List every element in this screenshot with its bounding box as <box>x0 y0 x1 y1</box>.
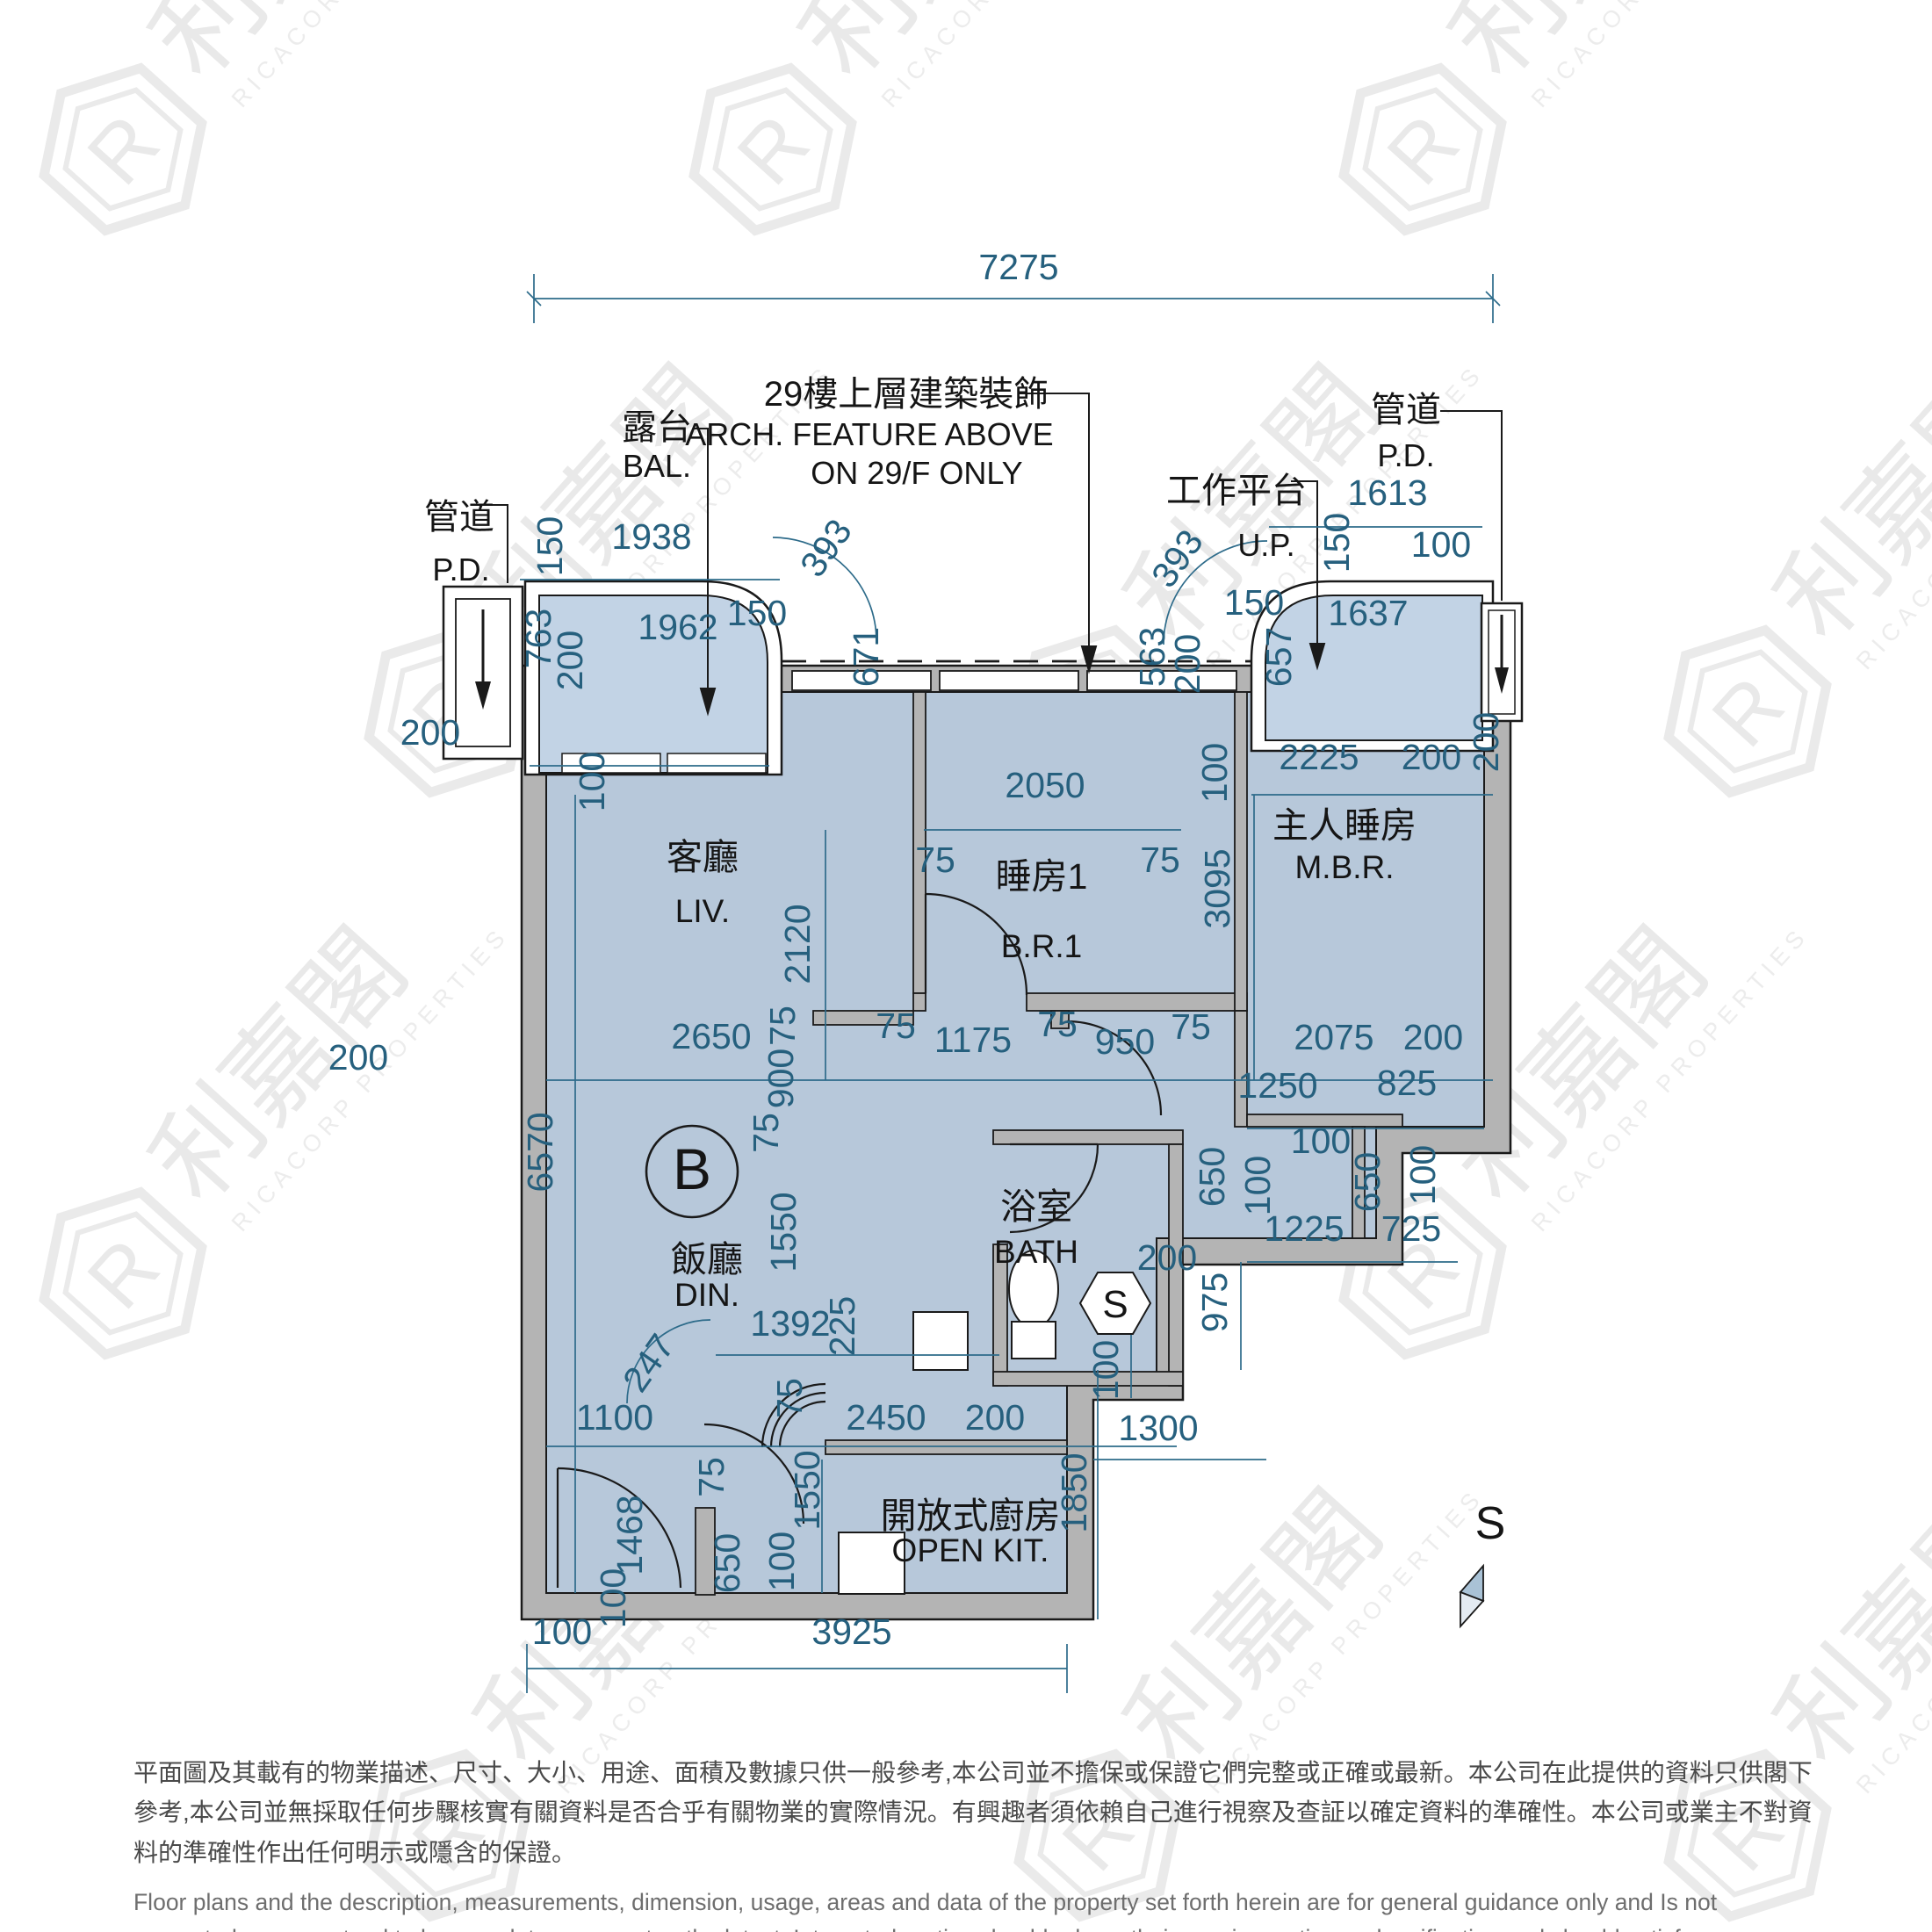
floor-plan-page: R利嘉閣RICACORP PROPERTIESR利嘉閣RICACORP PROP… <box>0 0 1932 1932</box>
dimension-label: 200 <box>1137 1237 1197 1278</box>
dimension-label: 2075 <box>1294 1017 1373 1057</box>
dimension-label: 100 <box>1194 743 1235 803</box>
dimension-label: 100 <box>532 1611 592 1652</box>
room-label-open-kitchen-en: OPEN KIT. <box>892 1532 1049 1568</box>
dimension-label: 100 <box>1237 1156 1278 1215</box>
dimension-label: 975 <box>1194 1272 1235 1332</box>
dimension-label: 75 <box>876 1006 916 1046</box>
dimension-label: 650 <box>1347 1152 1388 1212</box>
pd-right-zh: 管道 <box>1371 391 1441 429</box>
dimension-label: 75 <box>691 1457 732 1497</box>
pd-left-zh: 管道 <box>424 498 494 537</box>
dimension-label: 75 <box>746 1113 786 1153</box>
dimension-label: 100 <box>593 1568 633 1628</box>
balcony-zh: 露台 <box>622 408 692 447</box>
room-label-master-bedroom-en: M.B.R. <box>1294 849 1394 885</box>
room-label-dining-room-zh: 飯廳 <box>671 1239 743 1280</box>
dimension-label: 1392 <box>750 1303 830 1344</box>
dimension-label: 2450 <box>846 1397 926 1438</box>
dimension-label: 1962 <box>638 607 717 647</box>
dimension-label: 2225 <box>1279 737 1359 777</box>
room-label-dining-room-en: DIN. <box>674 1277 739 1313</box>
watermark-tile: R利嘉閣RICACORP PROPERTIES <box>13 0 527 259</box>
floor-plan-drawing: R利嘉閣RICACORP PROPERTIESR利嘉閣RICACORP PROP… <box>0 0 1932 1932</box>
pd-left-en: P.D. <box>432 551 489 588</box>
dimension-label: 200 <box>400 712 460 753</box>
room-label-bedroom-1-en: B.R.1 <box>1001 928 1083 964</box>
arch-feature-zh: 29樓上層建築裝飾 <box>764 375 1049 414</box>
dimension-label: 1550 <box>787 1450 827 1530</box>
dimension-label: 2120 <box>777 904 818 984</box>
dimension-label: 1613 <box>1347 472 1427 513</box>
dimension-label: 1938 <box>611 516 691 557</box>
dimension-label: 75 <box>762 1006 803 1046</box>
dimension-label: 100 <box>572 752 612 811</box>
dimension-label: 657 <box>1258 627 1299 687</box>
dimension-label: 1100 <box>576 1397 653 1438</box>
dimension-label: 2050 <box>1005 765 1085 805</box>
pd-right-en: P.D. <box>1377 437 1434 473</box>
dimension-label: 900 <box>761 1049 801 1108</box>
dimension-label: 1225 <box>1264 1208 1344 1249</box>
compass <box>1460 1566 1483 1626</box>
watermark-tile: R利嘉閣RICACORP PROPERTIES <box>13 839 527 1383</box>
arch-feature-en2: ON 29/F ONLY <box>811 455 1022 491</box>
compass-label: S <box>1475 1498 1506 1549</box>
dimension-label: 3095 <box>1197 848 1237 928</box>
cabinet <box>913 1312 968 1370</box>
toilet-tank <box>1012 1322 1056 1359</box>
dimension-label: 200 <box>1402 737 1461 777</box>
room-label-open-kitchen-zh: 開放式廚房 <box>881 1496 1061 1536</box>
room-label-bathroom-en: BATH <box>994 1234 1078 1270</box>
dimension-label: 75 <box>915 840 955 880</box>
window <box>667 753 766 773</box>
dimension-label: 200 <box>550 631 590 690</box>
dimension-label: 100 <box>1291 1121 1351 1161</box>
dimension-label: 2650 <box>671 1016 751 1056</box>
watermark-tile: R利嘉閣RICACORP PROPERTIES <box>1313 0 1827 259</box>
dimension-label: 150 <box>727 593 787 633</box>
dimension-label: 6570 <box>520 1112 560 1192</box>
dimension-label: 1468 <box>609 1495 650 1575</box>
dimension-label: 1637 <box>1328 593 1408 633</box>
dimension-label: 950 <box>1095 1021 1155 1062</box>
room-label-bathroom-zh: 浴室 <box>1000 1186 1072 1227</box>
dimension-label: 1300 <box>1118 1408 1198 1448</box>
dimension-label: 1250 <box>1237 1065 1317 1106</box>
dimension-label: 200 <box>1167 634 1207 694</box>
room-label-living-room-en: LIV. <box>675 893 730 929</box>
dimension-label: 200 <box>1466 712 1506 772</box>
up-zh: 工作平台 <box>1166 472 1307 510</box>
dimension-label: 1175 <box>934 1020 1012 1060</box>
room-label-living-room-zh: 客廳 <box>667 837 739 877</box>
watermark-tile: R利嘉閣RICACORP PROPERTIES <box>663 0 1177 259</box>
dimension-label: 7275 <box>978 247 1058 287</box>
watermark-tile: R利嘉閣RICACORP PROPERTIES <box>1638 277 1932 821</box>
pipe-duct-right <box>1481 603 1522 721</box>
dimension-label: 200 <box>965 1397 1025 1438</box>
up-en: U.P. <box>1237 527 1294 563</box>
dimension-label: 1550 <box>763 1192 804 1272</box>
dimension-label: 150 <box>1224 582 1284 623</box>
dimension-label: 650 <box>707 1533 747 1593</box>
disclaimer-chinese: 平面圖及其載有的物業描述、尺寸、大小、用途、面積及數據只供一般參考,本公司並不擔… <box>133 1753 1815 1872</box>
dimension-label: 200 <box>1403 1017 1463 1057</box>
dimension-label: 725 <box>1381 1208 1441 1249</box>
disclaimer: 平面圖及其載有的物業描述、尺寸、大小、用途、面積及數據只供一般參考,本公司並不擔… <box>133 1753 1815 1932</box>
unit-circle-label: B <box>673 1136 711 1201</box>
dimension-label: 200 <box>328 1037 388 1078</box>
dimension-label: 825 <box>1377 1063 1437 1103</box>
dimension-label: 100 <box>1411 524 1471 565</box>
disclaimer-english: Floor plans and the description, measure… <box>133 1885 1815 1932</box>
shower-label: S <box>1102 1283 1128 1326</box>
dimension-label: 3925 <box>811 1611 891 1652</box>
room-label-master-bedroom-zh: 主人睡房 <box>1272 805 1417 846</box>
dimension-label: 100 <box>761 1532 802 1591</box>
arch-feature-en1: ARCH. FEATURE ABOVE <box>685 416 1053 452</box>
dimension-label: 150 <box>530 516 570 576</box>
room-label-bedroom-1-zh: 睡房1 <box>996 856 1088 897</box>
dimension-label: 100 <box>1402 1145 1443 1205</box>
balcony-en: BAL. <box>623 448 691 484</box>
dimension-label: 75 <box>1171 1006 1211 1047</box>
dimension-label: 393 <box>792 512 860 584</box>
dimension-label: 150 <box>1316 513 1357 573</box>
dimension-label: 100 <box>1085 1340 1126 1400</box>
dimension-label: 671 <box>846 627 886 687</box>
dimension-label: 75 <box>1037 1004 1078 1044</box>
dimension-label: 75 <box>1140 840 1180 880</box>
dimension-label: 225 <box>822 1296 862 1356</box>
dimension-label: 75 <box>769 1378 810 1418</box>
dimension-label: 650 <box>1192 1147 1232 1207</box>
